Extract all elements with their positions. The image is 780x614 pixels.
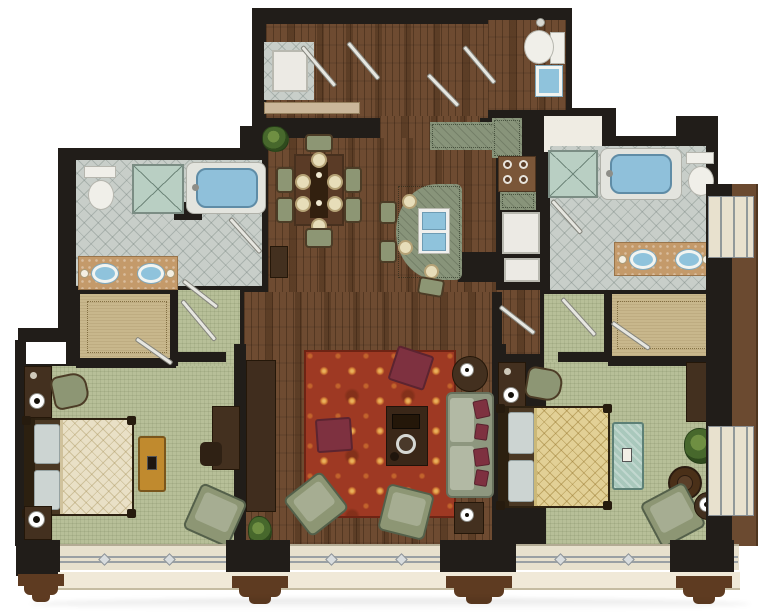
wall-corridor-bedroom-left	[178, 352, 226, 362]
dining-chair-right-2	[344, 197, 362, 223]
place-setting-left-1	[295, 174, 311, 190]
cooktop-burner-2	[519, 160, 528, 169]
kitchen-counter-top	[430, 122, 496, 150]
sofa-cushion-2	[450, 446, 474, 490]
kitchen-counter-corner	[492, 118, 522, 158]
left-shower	[132, 164, 184, 214]
kitchen-counter-below-cooktop	[500, 192, 536, 210]
powder-toilet-bowl	[524, 30, 554, 64]
left-bed-pillow-1	[34, 424, 60, 464]
left-bed-duvet	[60, 420, 132, 514]
place-setting-left-2	[295, 196, 311, 212]
right-toilet-tank	[686, 152, 714, 164]
right-shower	[548, 150, 598, 198]
left-vanity-sink-2	[138, 264, 164, 283]
dining-plant	[262, 126, 289, 152]
dining-table-runner	[310, 162, 328, 218]
corbel-1	[18, 574, 64, 586]
cooktop-burner-3	[503, 175, 512, 184]
left-toilet-bowl	[88, 180, 114, 210]
powder-paper-roll	[536, 18, 545, 27]
right-vanity-knob-1	[618, 255, 627, 264]
facade-pier-3	[440, 540, 516, 576]
left-closet-floor	[80, 294, 174, 360]
sofa-pillow-4	[474, 469, 490, 487]
left-bed-post-2	[127, 416, 136, 425]
dining-candle-2	[316, 200, 322, 206]
left-bed-pillow-2	[34, 470, 60, 510]
right-nightstand-top	[498, 362, 526, 410]
coffee-table-tray	[392, 414, 420, 429]
ground-shadow	[30, 598, 750, 610]
left-vanity-sink-1	[92, 264, 118, 283]
place-setting-top	[311, 152, 327, 168]
corbel-2	[232, 576, 288, 588]
sofa-pillow-2	[474, 423, 489, 441]
sofa-cushion-1	[450, 398, 474, 442]
media-console	[246, 360, 276, 512]
entry-console-shelf	[264, 102, 360, 114]
ottoman-left	[315, 417, 353, 453]
right-vanity-sink-2	[676, 250, 702, 269]
left-window-niche	[26, 342, 66, 364]
left-desk-chair	[200, 442, 222, 466]
right-closet-floor	[610, 294, 714, 356]
left-toilet-tank	[84, 166, 116, 178]
window-sill	[58, 572, 740, 590]
left-vanity-knob-1	[80, 269, 89, 278]
right-bed-pillow-2	[508, 460, 534, 502]
floor-plan	[0, 0, 780, 614]
right-bed-post-1	[496, 404, 505, 413]
place-setting-right-2	[327, 196, 343, 212]
dining-chair-left-1	[276, 167, 294, 193]
wall-closet-corridor-left	[170, 294, 178, 360]
end-table-lamp	[461, 509, 473, 521]
bar-stool-1	[379, 201, 397, 224]
facade-pier-2	[226, 540, 290, 576]
corbel-4	[676, 576, 732, 588]
island-place-setting-2	[398, 240, 413, 255]
right-bed-post-3	[496, 501, 505, 510]
coffee-table-plate	[396, 434, 416, 454]
dining-chair-left-2	[276, 197, 294, 223]
right-tub-basin	[610, 154, 672, 194]
refrigerator	[502, 212, 540, 254]
right-bed-pillow-1	[508, 412, 534, 454]
kitchen-counter-white	[504, 258, 540, 282]
facade-pier-4	[670, 540, 734, 576]
facade-pier-1	[16, 540, 60, 576]
dining-chair-bottom	[305, 228, 333, 248]
island-sink-basin-2	[422, 233, 446, 251]
right-lamp-top	[504, 388, 518, 402]
left-tub-faucet	[192, 184, 199, 191]
cooktop-burner-4	[519, 175, 528, 184]
dining-candle-1	[316, 172, 322, 178]
right-vanity-sink-1	[630, 250, 656, 269]
washer-machine	[272, 50, 308, 92]
right-bed-post-2	[603, 404, 612, 413]
right-bench-decor	[622, 448, 632, 462]
bar-stool-2	[379, 240, 397, 263]
left-tub-basin	[196, 168, 258, 208]
wall-closet-corridor-right	[604, 294, 612, 360]
wall-corridor-bedroom-right	[558, 352, 606, 362]
place-setting-right-1	[327, 174, 343, 190]
dining-chair-right-1	[344, 167, 362, 193]
right-window-bay-top	[708, 196, 754, 258]
sofa-pillow-3	[473, 447, 490, 467]
left-nightstand-top	[24, 366, 52, 418]
right-bed-post-4	[603, 501, 612, 510]
dining-side-cabinet	[270, 246, 288, 278]
right-nightstand-decor	[504, 368, 511, 375]
right-window-bay-bottom	[708, 426, 754, 516]
right-tub-faucet	[606, 170, 613, 177]
wall-right-corridor-west	[492, 292, 502, 350]
coffee-table-cup	[390, 452, 399, 461]
round-table-lamp	[461, 364, 473, 376]
island-sink-basin-1	[422, 212, 446, 230]
wall-kitchen-south-stub	[458, 252, 502, 282]
wall-left-step-corner	[18, 328, 64, 342]
left-bed-post-4	[127, 509, 136, 518]
left-bed-post-1	[22, 416, 31, 425]
powder-sink	[536, 66, 562, 96]
right-bed-duvet	[534, 408, 608, 506]
left-vanity-knob-2	[166, 269, 175, 278]
left-lamp-top	[30, 394, 44, 408]
island-place-setting-1	[402, 194, 417, 209]
left-bench-decor	[147, 456, 157, 470]
left-lamp-bottom	[29, 512, 44, 527]
cooktop-burner-1	[503, 160, 512, 169]
left-nightstand-decor	[30, 372, 37, 379]
dining-chair-top	[305, 134, 333, 152]
corbel-3	[446, 576, 512, 588]
